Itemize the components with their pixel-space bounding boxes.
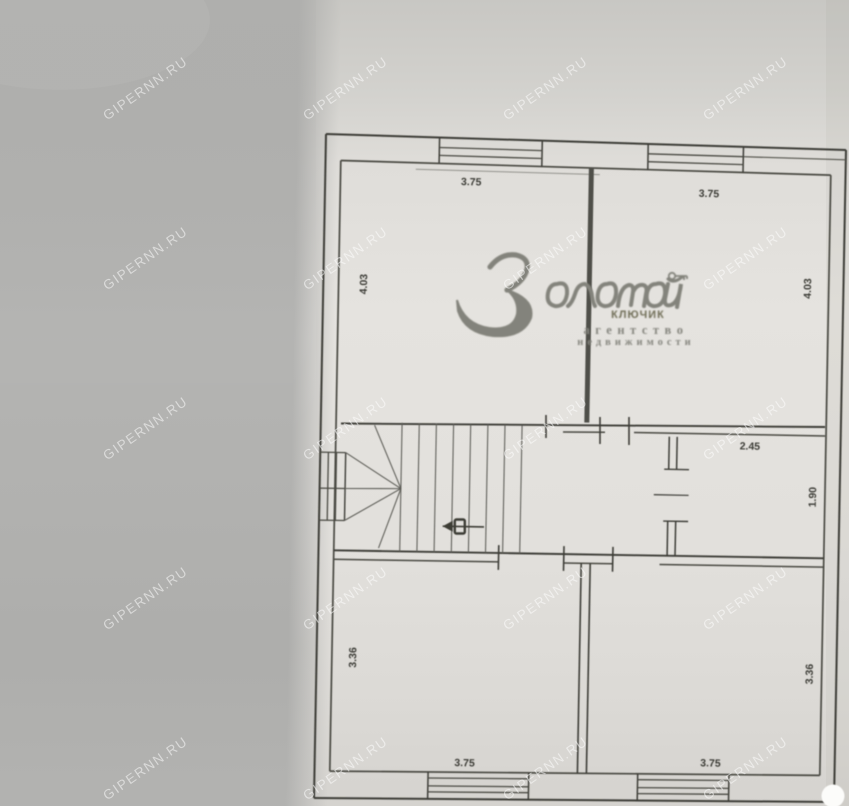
svg-text:GIPERNN.RU: GIPERNN.RU bbox=[500, 54, 590, 124]
svg-text:3.75: 3.75 bbox=[454, 757, 475, 770]
svg-text:недвижимости: недвижимости bbox=[577, 337, 694, 348]
svg-text:GIPERNN.RU: GIPERNN.RU bbox=[500, 564, 590, 634]
svg-text:3.75: 3.75 bbox=[461, 176, 482, 189]
svg-text:3.36: 3.36 bbox=[347, 647, 359, 668]
svg-text:КЛЮЧИК: КЛЮЧИК bbox=[611, 309, 665, 321]
svg-text:GIPERNN.RU: GIPERNN.RU bbox=[700, 394, 790, 464]
svg-text:1.90: 1.90 bbox=[807, 487, 819, 508]
svg-text:агентство: агентство bbox=[584, 323, 689, 337]
svg-text:4.03: 4.03 bbox=[358, 274, 370, 295]
svg-text:GIPERNN.RU: GIPERNN.RU bbox=[500, 224, 590, 294]
svg-text:GIPERNN.RU: GIPERNN.RU bbox=[500, 394, 590, 464]
svg-text:3.36: 3.36 bbox=[804, 664, 816, 685]
svg-text:GIPERNN.RU: GIPERNN.RU bbox=[700, 54, 790, 124]
svg-text:3.75: 3.75 bbox=[699, 188, 720, 201]
svg-text:4.03: 4.03 bbox=[802, 278, 814, 299]
svg-text:GIPERNN.RU: GIPERNN.RU bbox=[700, 564, 790, 634]
svg-text:2.45: 2.45 bbox=[740, 440, 761, 453]
svg-text:3.75: 3.75 bbox=[700, 757, 721, 770]
svg-text:GIPERNN.RU: GIPERNN.RU bbox=[700, 224, 790, 294]
